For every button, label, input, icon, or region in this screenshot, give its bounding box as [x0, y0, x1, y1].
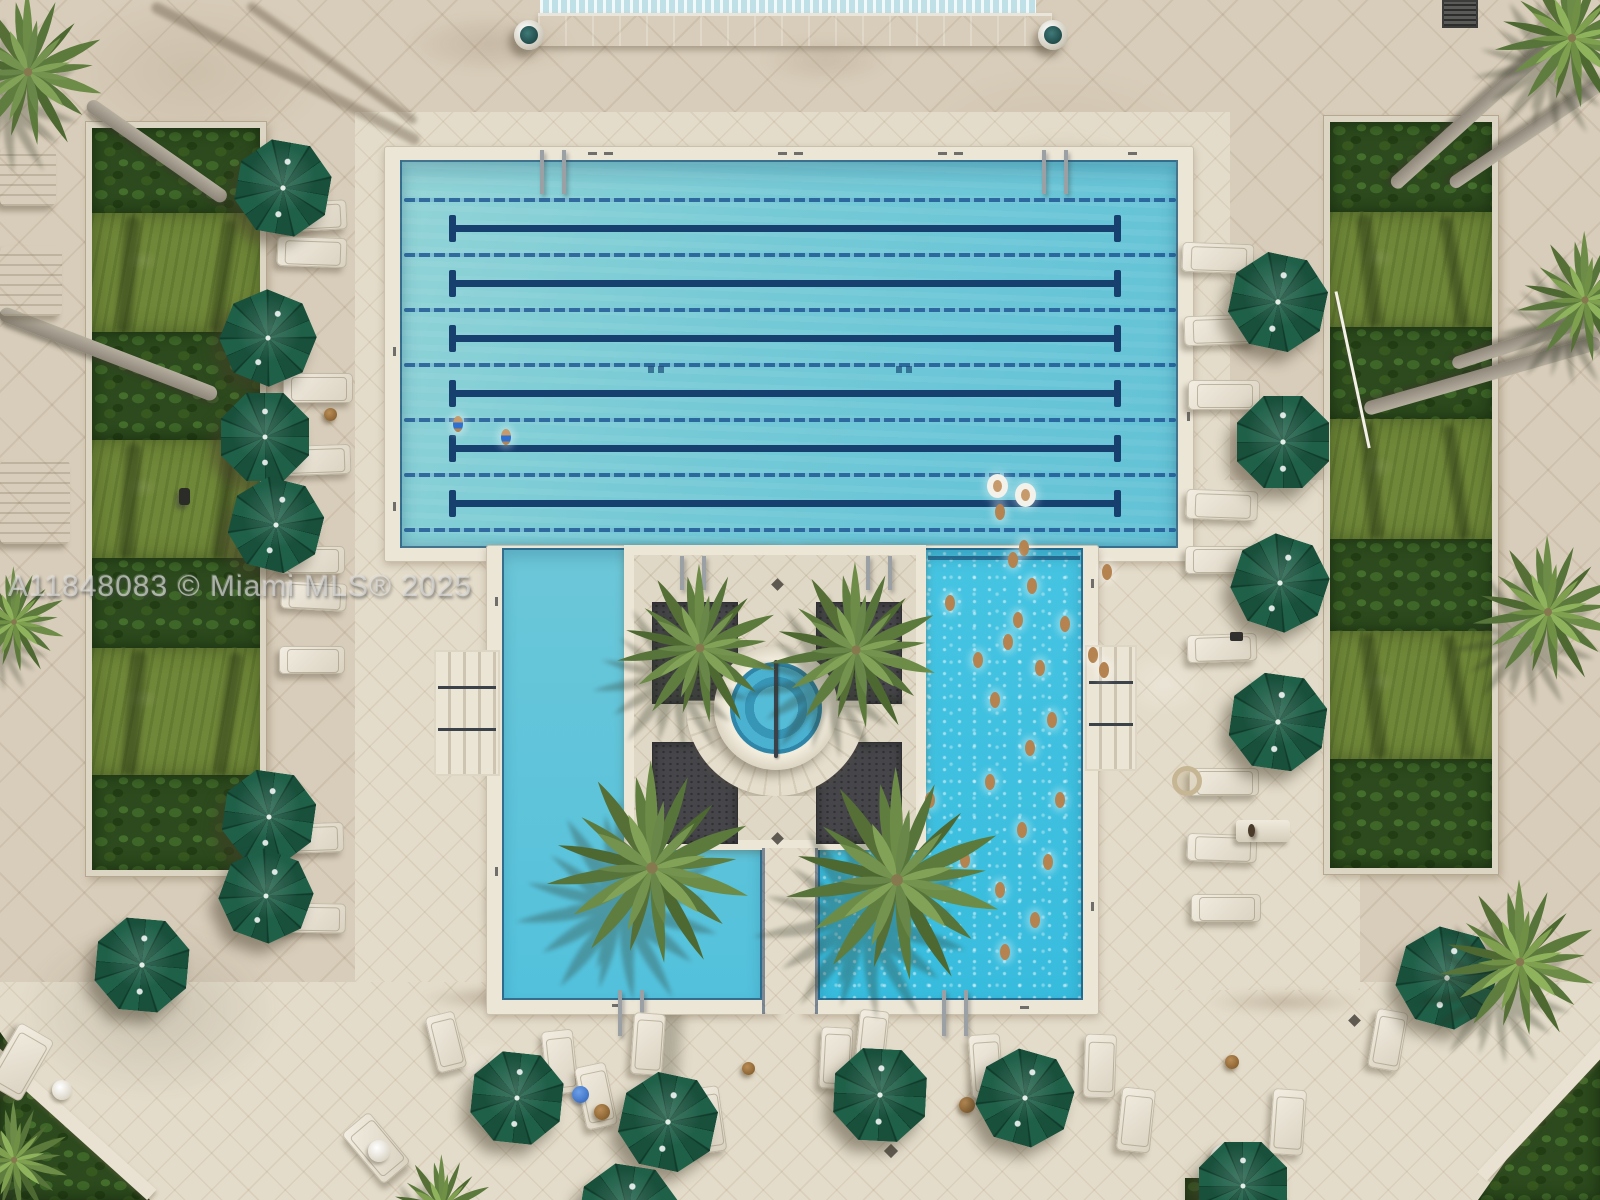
palm-tree	[386, 1152, 498, 1200]
palm-tree	[1490, 0, 1600, 120]
palm-tree	[1434, 876, 1600, 1048]
palm-tree	[0, 1098, 76, 1200]
palm-tree	[1513, 228, 1600, 372]
palm-tree	[764, 558, 948, 742]
aerial-pool-photo: A11848083 © Miami MLS® 2025	[0, 0, 1600, 1200]
mls-watermark: A11848083 © Miami MLS® 2025	[8, 570, 472, 604]
palm-tree	[540, 756, 764, 980]
palm-tree	[0, 0, 114, 158]
palm-tree	[1468, 532, 1600, 692]
palm-tree	[779, 762, 1015, 998]
